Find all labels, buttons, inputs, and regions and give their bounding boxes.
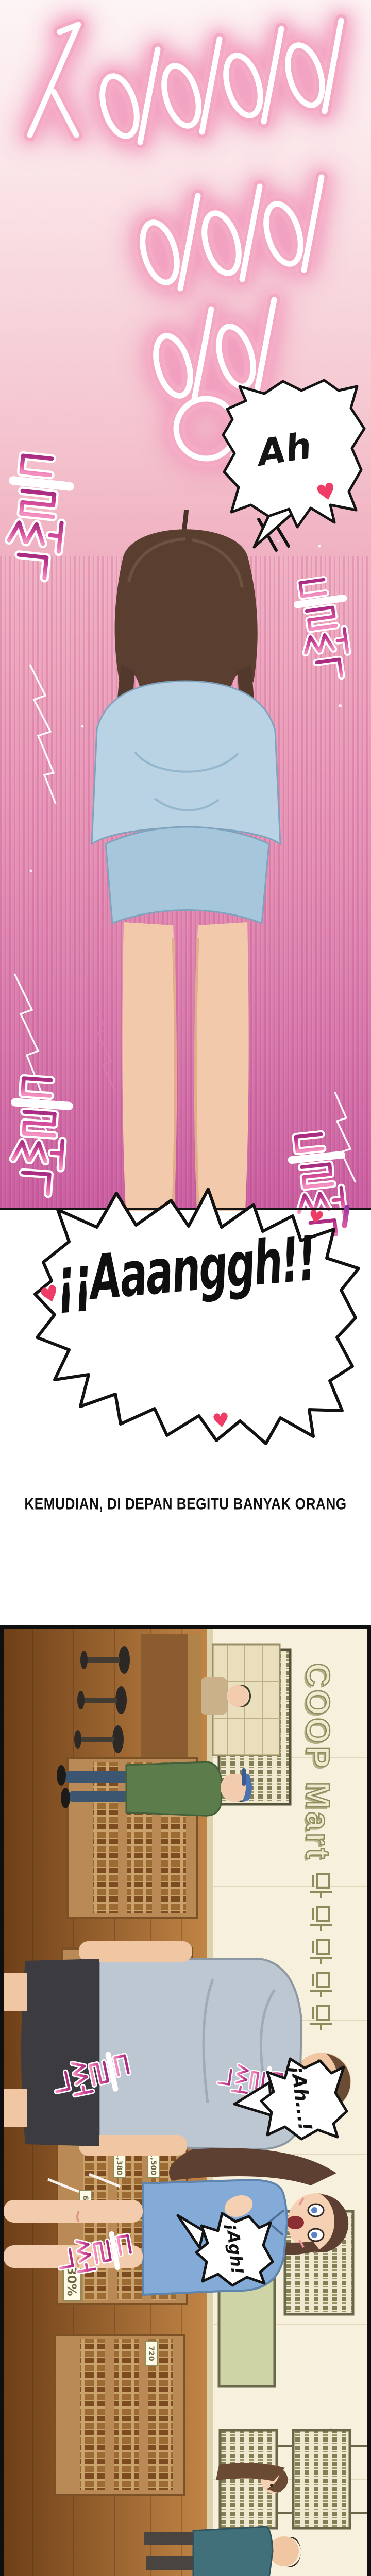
rotated-store-scene: COOP Mart COOP Mart	[4, 1629, 367, 2576]
mart-sign-text: COOP Mart	[299, 1663, 336, 1861]
sfx-deulsseok	[4, 455, 73, 580]
shelf-gondola	[55, 2335, 184, 2495]
shake-sfx-layer	[0, 0, 371, 1236]
heart-icon: ♥	[211, 1410, 231, 1431]
counter-front	[141, 1634, 188, 1764]
price-tag: 1,380	[115, 2153, 123, 2176]
narration-caption: KEMUDIAN, DI DEPAN BEGITU BANYAK ORANG	[6, 1495, 365, 1514]
hanging-sign-boards	[220, 2430, 367, 2528]
webtoon-page: Ah ♥ ¡¡Aaanggh!! ♥ ♥ ♥ KEMUDIAN, DI DEPA…	[0, 0, 371, 2576]
counter-top	[188, 1634, 201, 1764]
sfx-deulsseok	[294, 577, 354, 681]
price-tag: 1,500	[149, 2153, 157, 2176]
sfx-deulsseok	[9, 1078, 71, 1195]
store-scene-panel: COOP Mart COOP Mart	[0, 1625, 371, 2576]
store-scene-art: COOP Mart COOP Mart	[4, 1629, 367, 2576]
bar-stools	[74, 1646, 130, 1753]
price-tag: 720	[147, 2346, 155, 2361]
